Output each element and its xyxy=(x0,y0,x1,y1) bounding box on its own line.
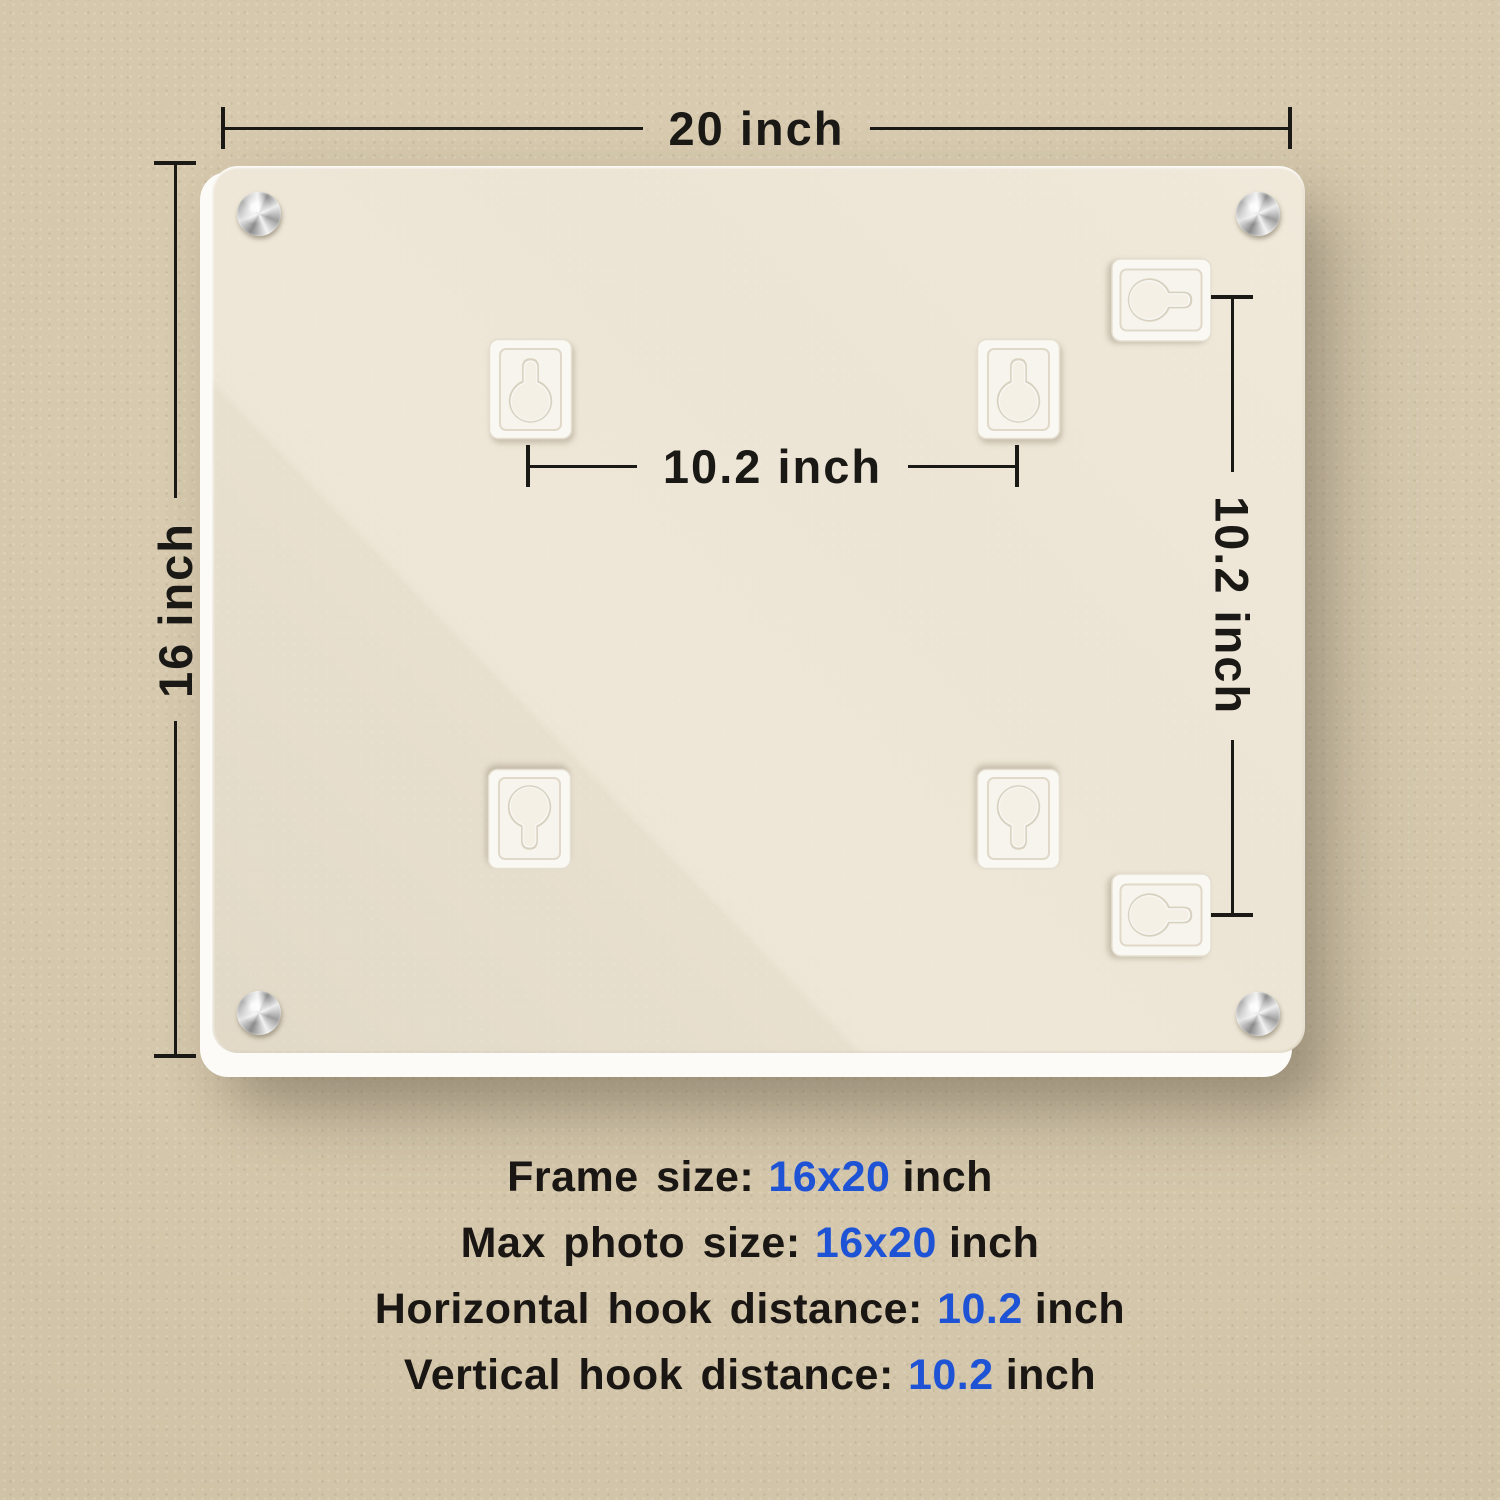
dimension-left-height: 16 inch xyxy=(153,161,197,1058)
spec-label: Horizontal hook distance: xyxy=(375,1285,923,1333)
spec-unit: inch xyxy=(1006,1351,1096,1399)
dimension-label-top-width: 20 inch xyxy=(643,101,871,156)
dimension-tick xyxy=(1015,445,1019,487)
dimension-label-hook-vertical: 10.2 inch xyxy=(1205,472,1260,739)
corner-screw-icon-bottom-left xyxy=(237,991,281,1035)
spec-label: Max photo size: xyxy=(461,1219,801,1267)
spec-label: Vertical hook distance: xyxy=(404,1351,894,1399)
spec-unit: inch xyxy=(1035,1285,1125,1333)
corner-screw-icon-top-right xyxy=(1236,192,1280,236)
corner-screw-icon-bottom-right xyxy=(1236,992,1280,1036)
dimension-top-width: 20 inch xyxy=(221,106,1292,150)
spec-value: 10.2 xyxy=(937,1285,1023,1333)
keyhole-hanger-icon-lower-right xyxy=(976,768,1061,870)
spec-line-horizontal-hook-distance: Horizontal hook distance:10.2inch xyxy=(0,1276,1500,1342)
dimension-tick xyxy=(154,1054,196,1058)
corner-screw-icon-top-left xyxy=(237,192,281,236)
product-image: 20 inch 16 inch 10.2 inch 10.2 inch Fram… xyxy=(0,0,1500,1500)
dimension-line xyxy=(908,465,1015,468)
dimension-label-left-height: 16 inch xyxy=(148,498,203,722)
keyhole-hanger-icon-upper-right xyxy=(976,338,1061,440)
spec-line-max-photo-size: Max photo size:16x20inch xyxy=(0,1210,1500,1276)
dimension-line xyxy=(870,127,1288,130)
spec-value: 16x20 xyxy=(815,1219,937,1267)
dimension-line xyxy=(530,465,637,468)
keyhole-hanger-icon-right-top xyxy=(1111,258,1213,343)
spec-text-block: Frame size:16x20inch Max photo size:16x2… xyxy=(0,1144,1500,1408)
dimension-line xyxy=(174,721,177,1054)
dimension-hook-horizontal: 10.2 inch xyxy=(526,444,1019,488)
spec-value: 16x20 xyxy=(768,1153,890,1201)
keyhole-hanger-icon-right-bottom xyxy=(1111,873,1213,958)
dimension-label-hook-horizontal: 10.2 inch xyxy=(637,439,908,494)
spec-line-frame-size: Frame size:16x20inch xyxy=(0,1144,1500,1210)
spec-value: 10.2 xyxy=(908,1351,994,1399)
spec-unit: inch xyxy=(949,1219,1039,1267)
dimension-hook-vertical: 10.2 inch xyxy=(1210,295,1254,917)
dimension-tick xyxy=(1211,913,1253,917)
dimension-tick xyxy=(1288,107,1292,149)
spec-line-vertical-hook-distance: Vertical hook distance:10.2inch xyxy=(0,1342,1500,1408)
keyhole-hanger-icon-lower-left xyxy=(487,768,572,870)
dimension-line xyxy=(1231,299,1234,472)
dimension-line xyxy=(174,165,177,498)
dimension-line xyxy=(1231,740,1234,913)
dimension-line xyxy=(225,127,643,130)
keyhole-hanger-icon-upper-left xyxy=(488,338,573,440)
spec-label: Frame size: xyxy=(507,1153,754,1201)
spec-unit: inch xyxy=(902,1153,992,1201)
